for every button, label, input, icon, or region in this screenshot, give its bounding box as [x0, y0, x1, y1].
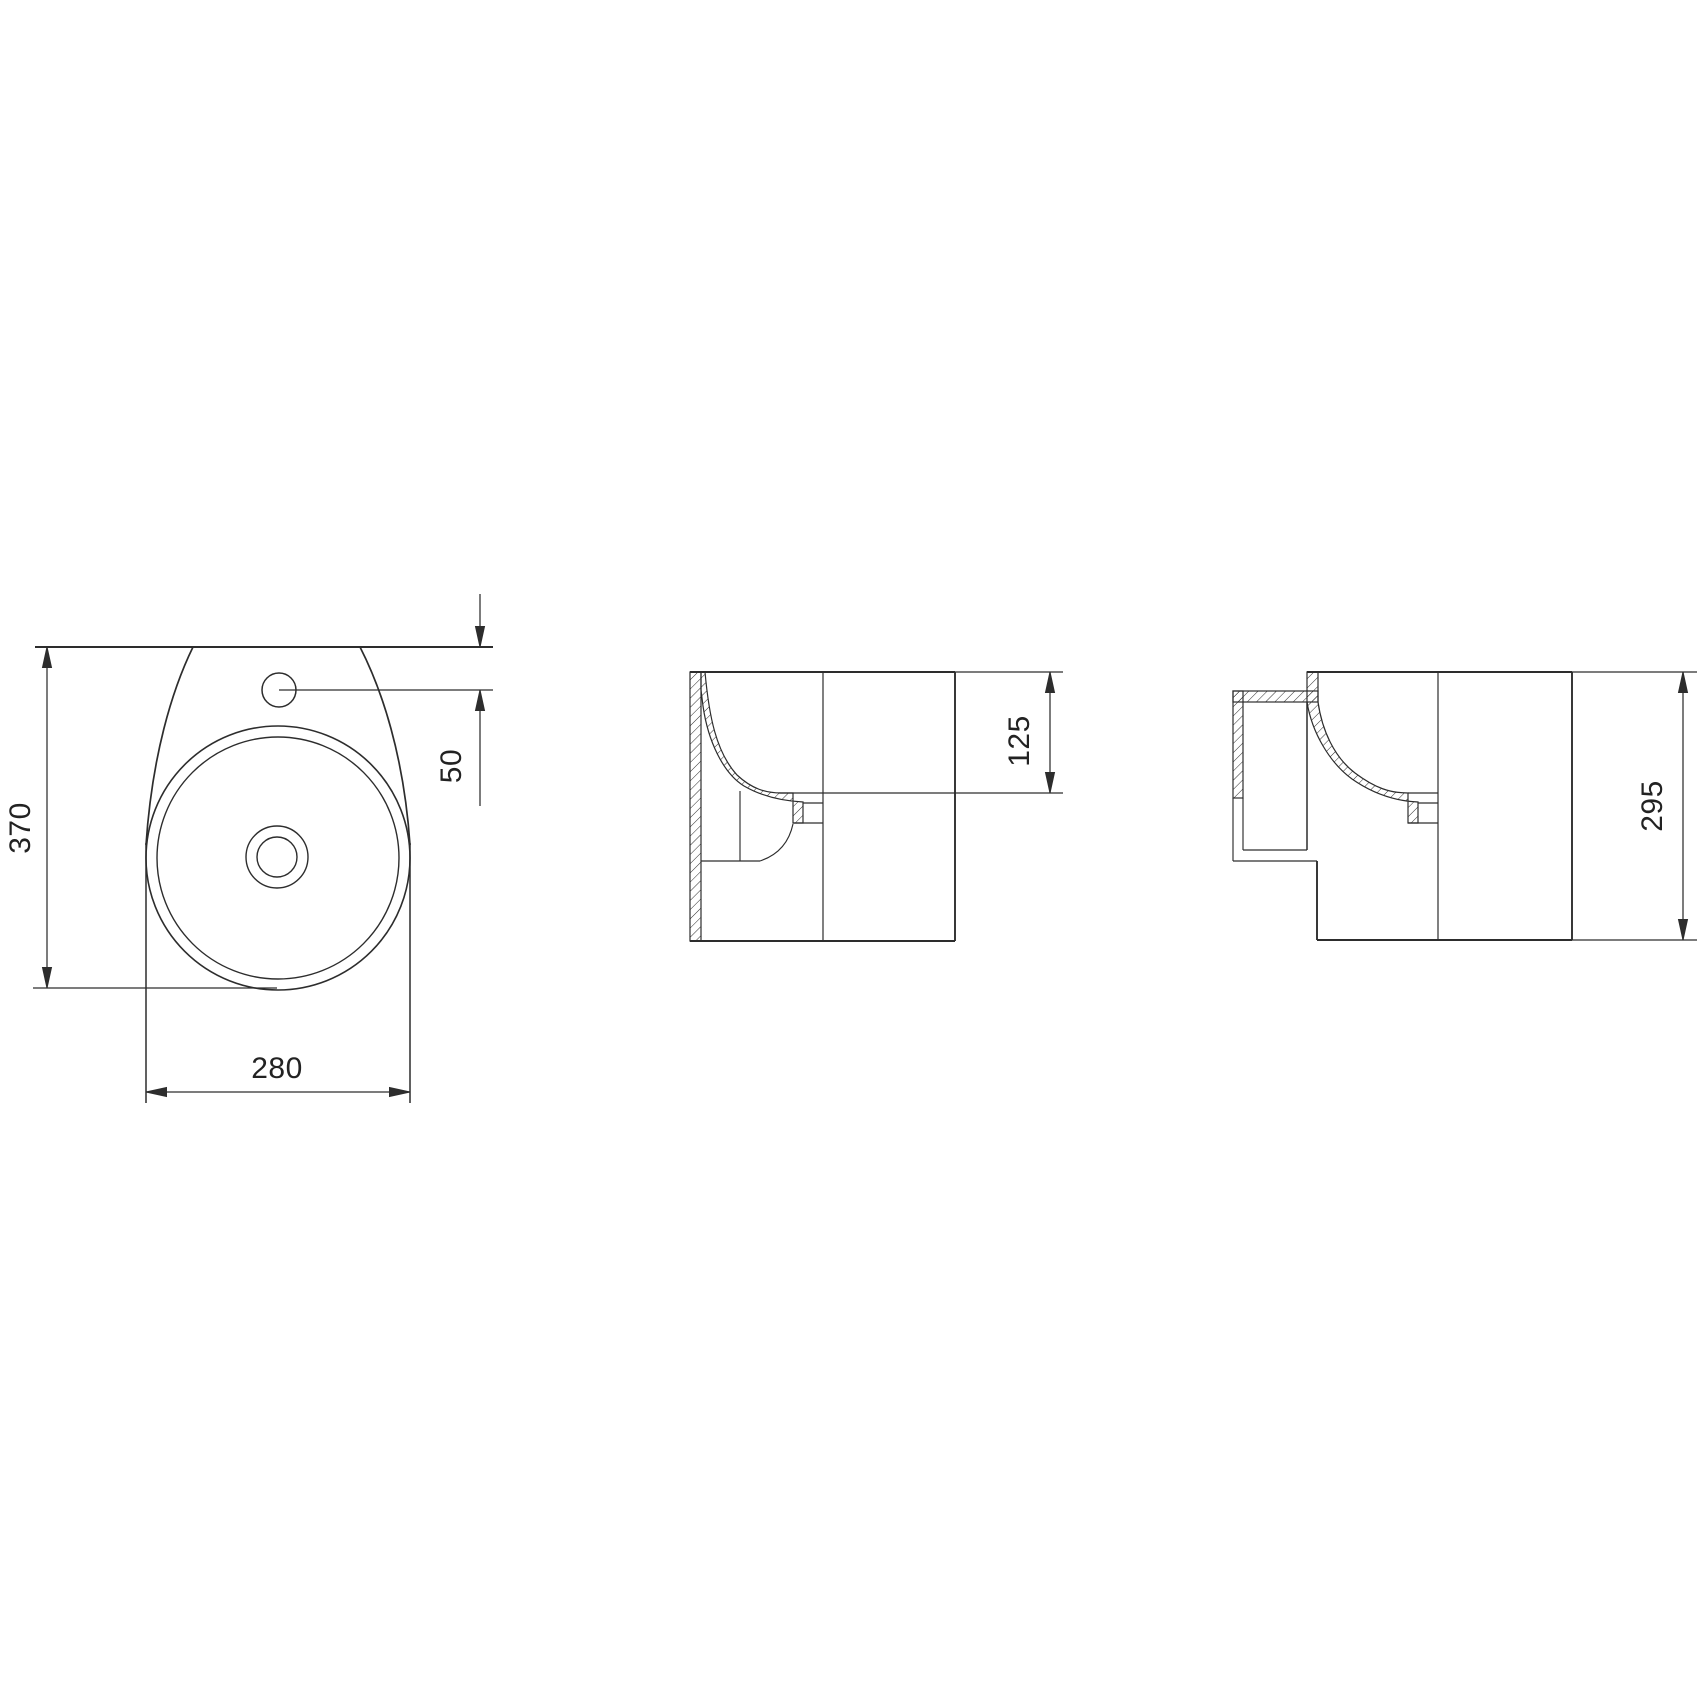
arrowhead-up [1046, 672, 1055, 693]
arrowhead-down [1046, 773, 1055, 794]
arrowhead-up [476, 690, 485, 711]
side-section-view: 125 [690, 672, 1063, 941]
dimension-depth-370: 370 [4, 647, 277, 988]
basin-rim-inner-circle [157, 737, 399, 979]
dimension-faucet-offset-50: 50 [435, 594, 485, 806]
dimension-text-280: 280 [251, 1052, 303, 1085]
underside-fillet-arc [760, 824, 793, 861]
drain-outer-circle [246, 826, 308, 888]
dimension-text-125: 125 [1003, 715, 1036, 767]
arrowhead-up [43, 647, 52, 668]
basin-rim-outer-circle [146, 726, 410, 990]
dimension-width-280: 280 [146, 1052, 410, 1097]
dimension-height-295: 295 [1636, 672, 1688, 940]
arrowhead-left [146, 1088, 167, 1097]
arrowhead-right [390, 1088, 411, 1097]
dimension-rim-depth-125: 125 [1003, 672, 1055, 793]
dimension-text-295: 295 [1636, 780, 1669, 832]
dimension-text-50: 50 [435, 749, 468, 783]
bowl-section-hatched [701, 672, 803, 823]
bracket-top-bar-hatched [1233, 691, 1318, 702]
bracket-left-bar-hatched [1233, 691, 1243, 798]
corner-bowl-section-hatched [1307, 672, 1418, 823]
wall-strip-hatched [690, 672, 701, 941]
arrowhead-down [476, 627, 485, 648]
technical-drawing: 370 50 280 [0, 0, 1703, 1703]
arrowhead-down [43, 968, 52, 989]
corner-section-view: 295 [1233, 672, 1697, 940]
drawing-canvas: 370 50 280 [0, 0, 1703, 1703]
arrowhead-down [1679, 920, 1688, 941]
drain-inner-circle [257, 837, 297, 877]
top-view: 370 50 280 [4, 594, 493, 1103]
dimension-text-370: 370 [4, 802, 37, 854]
arrowhead-up [1679, 672, 1688, 693]
